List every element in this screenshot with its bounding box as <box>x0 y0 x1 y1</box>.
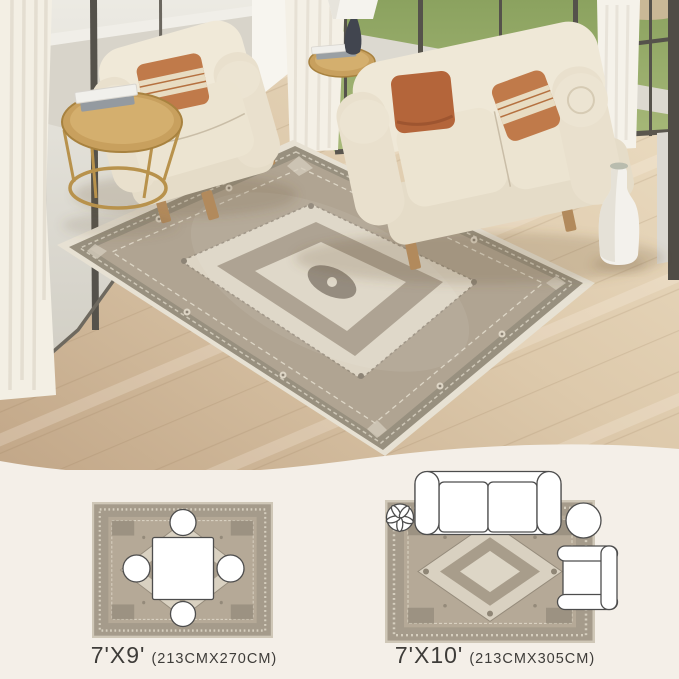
dining-chair-icon <box>123 555 150 582</box>
solid-pillow <box>390 70 456 134</box>
scene-canvas <box>0 0 679 679</box>
dimensions-text: (213CMX305CM) <box>469 651 595 667</box>
product-image: 7'X9' (213CMX270CM) 7'X10' (213CMX305CM) <box>0 0 679 679</box>
size-text: 7'X9' <box>91 642 146 669</box>
living-room-photo <box>0 0 679 470</box>
sofa-icon <box>415 472 561 535</box>
dining-chair-icon <box>171 602 196 627</box>
vase-opening <box>610 163 628 170</box>
size-option-7x10-label: 7'X10' (213CMX305CM) <box>375 642 615 669</box>
armchair-icon <box>558 546 618 610</box>
dining-chair-icon <box>217 555 244 582</box>
door-frame <box>668 0 679 280</box>
size-diagram-7x9 <box>92 502 273 638</box>
dining-table-icon <box>153 538 214 600</box>
dining-chair-icon <box>170 510 196 536</box>
size-option-7x9-label: 7'X9' (213CMX270CM) <box>78 642 290 669</box>
plant-icon <box>386 504 414 532</box>
round-table-icon <box>566 503 601 538</box>
dimensions-text: (213CMX270CM) <box>151 651 277 667</box>
size-text: 7'X10' <box>395 642 464 669</box>
